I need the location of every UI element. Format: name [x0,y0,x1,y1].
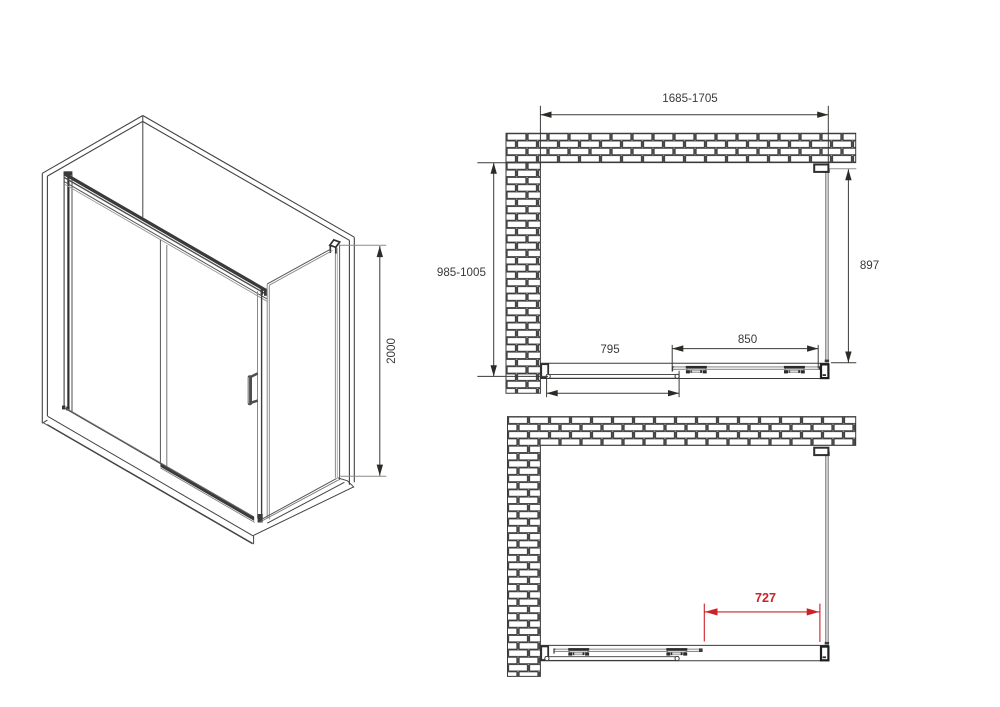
svg-text:897: 897 [860,259,879,272]
svg-text:985-1005: 985-1005 [437,266,486,279]
svg-text:1685-1705: 1685-1705 [662,92,717,105]
svg-text:795: 795 [600,343,619,356]
svg-text:727: 727 [755,591,776,605]
svg-text:850: 850 [738,333,757,346]
svg-text:2000: 2000 [385,338,398,364]
